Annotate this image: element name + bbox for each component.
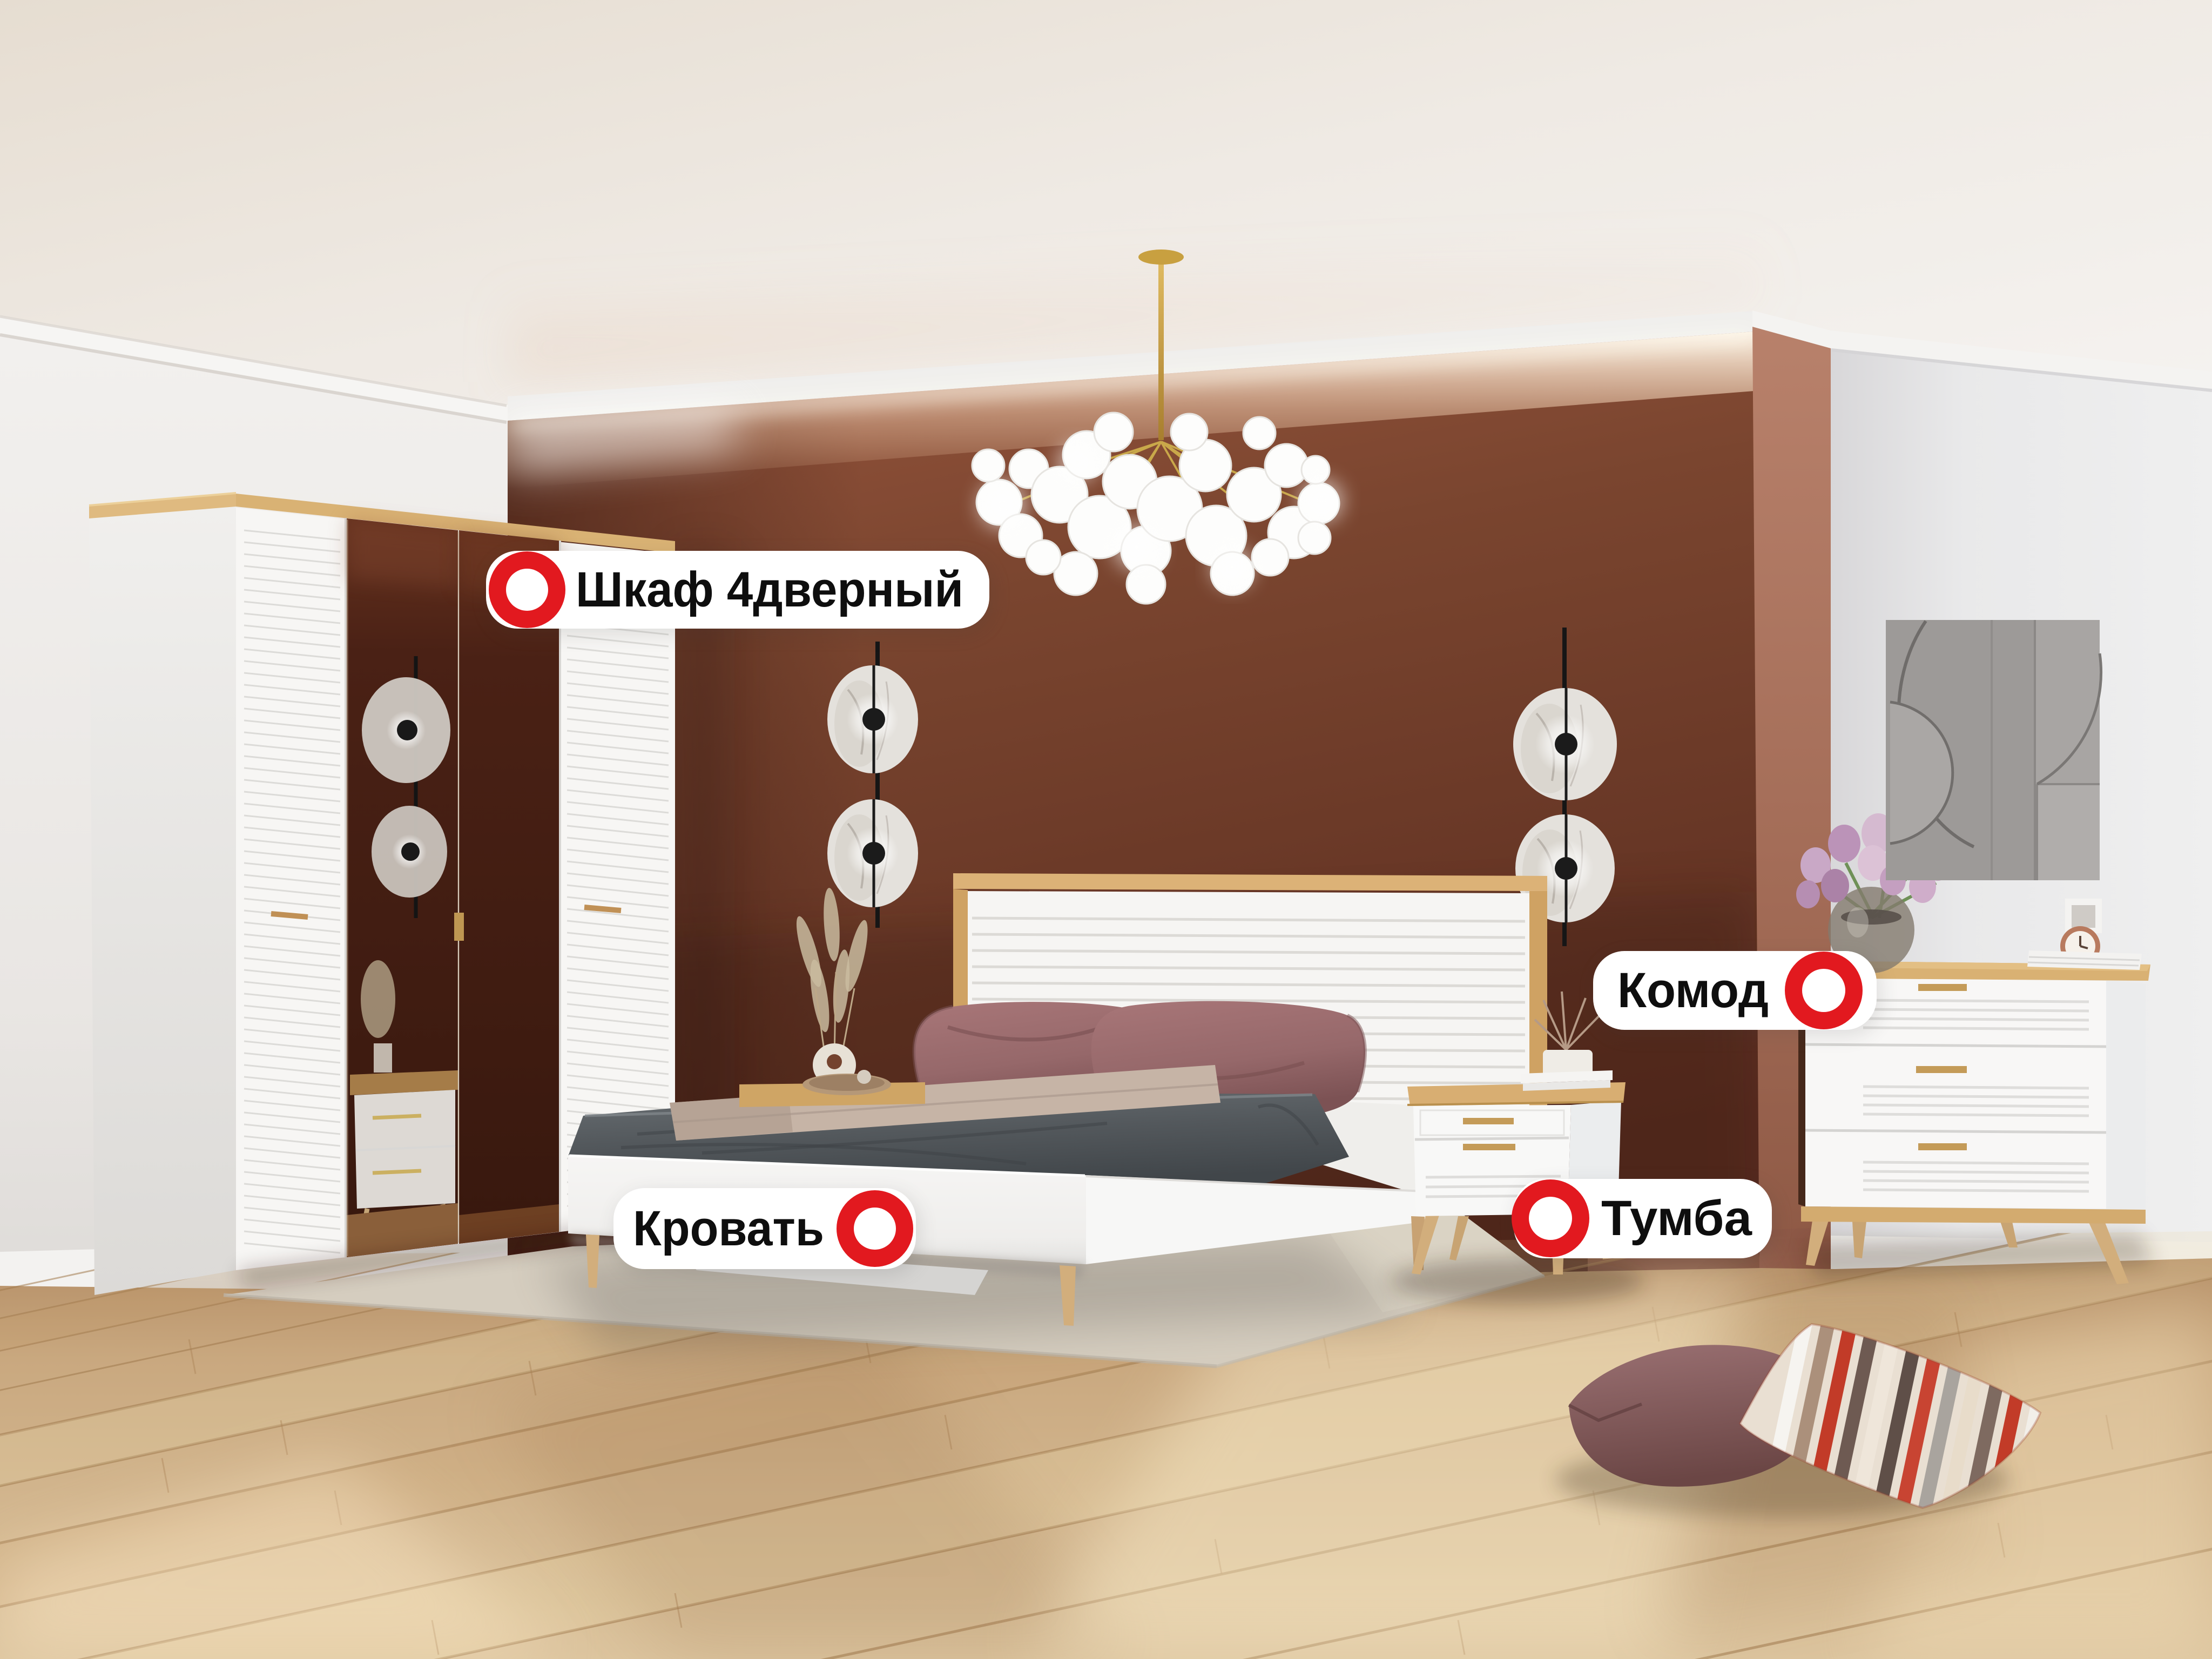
svg-text:Комод: Комод — [1617, 963, 1769, 1018]
svg-text:Шкаф 4дверный: Шкаф 4дверный — [576, 562, 963, 617]
svg-text:Тумба: Тумба — [1601, 1191, 1752, 1246]
svg-text:Кровать: Кровать — [633, 1201, 824, 1256]
